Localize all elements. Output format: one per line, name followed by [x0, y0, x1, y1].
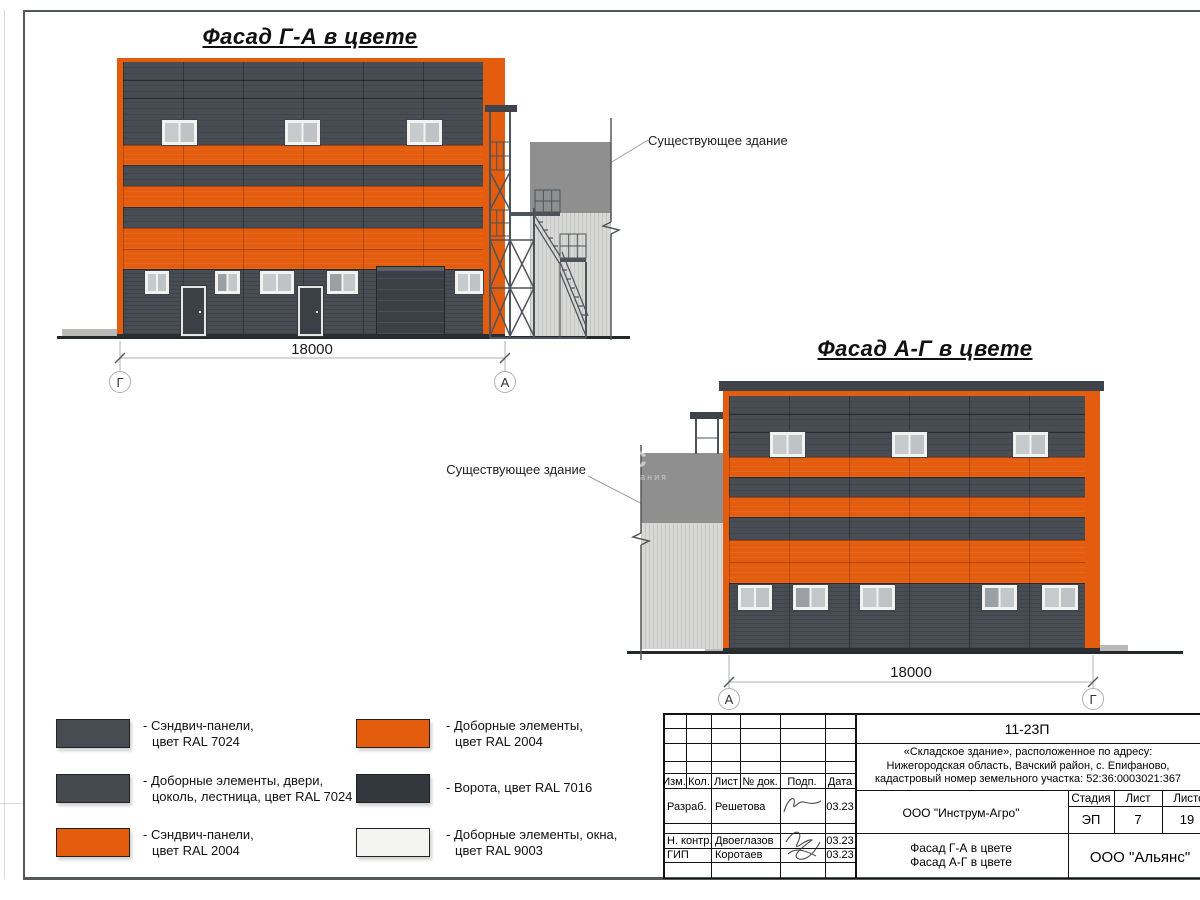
facade2-dimension: 18000 А Г	[620, 655, 1180, 711]
listov-value: 19	[1180, 812, 1194, 827]
project-name: «Складское здание», расположенное по адр…	[875, 746, 1181, 787]
window	[145, 271, 169, 294]
legend-label: - Сэндвич-панели,цвет RAL 2004	[143, 827, 254, 859]
row3-role: ГИП	[667, 849, 689, 861]
legend-swatch-ral9003	[356, 828, 430, 857]
legend-swatch-ral2004-extras	[356, 719, 430, 748]
row1-date: 03.23	[826, 801, 854, 813]
row1-name: Решетова	[715, 801, 765, 813]
col-kol: Кол.	[688, 776, 710, 788]
facade2-band-orange	[729, 457, 1085, 477]
plinth-step	[62, 329, 117, 336]
facade2-band-orange	[729, 497, 1085, 517]
window	[982, 585, 1017, 610]
legend-label: - Сэндвич-панели,цвет RAL 7024	[143, 718, 254, 750]
facade2-band-orange-tall	[729, 540, 1085, 583]
legend-label: - Доборные элементы,цвет RAL 2004	[446, 718, 583, 750]
facade2-note: Существующее здание	[440, 462, 586, 477]
facade1	[117, 58, 507, 337]
facade2-title: Фасад А-Г в цвете	[730, 336, 1120, 362]
window	[407, 120, 442, 145]
window	[1013, 432, 1048, 457]
facade1-axis-right: А	[501, 375, 510, 390]
facade2-band-dark	[729, 517, 1085, 540]
facade1-band-dark	[123, 80, 483, 98]
facade1-axis-left: Г	[116, 375, 123, 390]
gate	[377, 267, 444, 334]
window	[327, 271, 358, 294]
window	[770, 432, 805, 457]
col-data: Дата	[828, 776, 852, 788]
row2-role: Н. контр.	[667, 835, 712, 847]
facade2-axis-left: А	[725, 692, 734, 707]
row3-name: Коротаев	[715, 849, 763, 861]
sheet-margin-tick	[0, 803, 23, 804]
doc-number: 11-23П	[1005, 721, 1050, 737]
window	[892, 432, 927, 457]
window	[1042, 585, 1078, 610]
col-list: Лист	[714, 776, 738, 788]
x-bracing	[490, 172, 534, 336]
facade2-right-trim	[1085, 396, 1100, 648]
window	[860, 585, 895, 610]
window	[285, 120, 320, 145]
facade2-band-plinth	[729, 583, 1085, 648]
facade1-band-orange	[123, 145, 483, 165]
facade2-band-dark	[729, 396, 1085, 414]
facade1-dim-text: 18000	[291, 341, 333, 358]
window	[455, 271, 483, 294]
door	[300, 288, 321, 334]
facade2-axis-right: Г	[1089, 692, 1096, 707]
list-value: 7	[1134, 812, 1141, 827]
org-name: ООО "Альянс"	[1090, 849, 1190, 866]
facade1-title: Фасад Г-А в цвете	[115, 24, 505, 50]
facade1-band-dark	[123, 207, 483, 228]
company-name: ООО "Инструм-Агро"	[903, 806, 1020, 820]
legend-label: - Ворота, цвет RAL 7016	[446, 780, 592, 796]
legend-label: - Доборные элементы, окна,цвет RAL 9003	[446, 827, 617, 859]
listov-label: Листов	[1173, 793, 1200, 805]
door	[183, 288, 204, 334]
facade1-band-orange-tall	[123, 228, 483, 269]
legend-swatch-ral7024-extras	[56, 774, 130, 803]
watermark: нс компания	[612, 443, 668, 482]
row2-date: 03.23	[826, 835, 854, 847]
watermark-big: нс	[612, 443, 668, 473]
stage-value: ЭП	[1082, 812, 1101, 827]
facade1-band-dark	[123, 165, 483, 186]
legend-swatch-ral2004	[56, 828, 130, 857]
legend-label: - Доборные элементы, двери,цоколь, лестн…	[143, 773, 352, 805]
facade2-dim-text: 18000	[890, 664, 932, 681]
window	[215, 271, 240, 294]
drawing-title: Фасад Г-А в цвете Фасад А-Г в цвете	[910, 841, 1012, 869]
row2-name: Двоеглазов	[715, 835, 773, 847]
watermark-small: компания	[612, 473, 668, 482]
window	[260, 271, 294, 294]
row3-date: 03.23	[826, 849, 854, 861]
drawing-sheet: { "colors":{ "orange":"#e45c0e", "panel_…	[0, 0, 1200, 900]
facade1-note: Существующее здание	[648, 133, 788, 148]
sheet-frame-top	[23, 10, 1200, 12]
sheet-margin-line	[4, 10, 5, 879]
facade2-base	[723, 648, 1100, 652]
legend-swatch-ral7016	[356, 774, 430, 803]
facade2-band-dark	[729, 414, 1085, 432]
window	[738, 585, 772, 610]
tower-roof	[485, 105, 517, 112]
window	[793, 585, 828, 610]
row1-role: Разраб.	[667, 801, 707, 813]
legend-swatch-ral7024	[56, 719, 130, 748]
stage-label: Стадия	[1071, 793, 1110, 805]
facade1-band-dark	[123, 62, 483, 80]
fire-escape-tower	[482, 100, 618, 342]
facade2	[719, 380, 1104, 652]
signature-squiggles	[780, 790, 825, 875]
facade2-band-dark	[729, 477, 1085, 497]
facade1-band-orange	[123, 186, 483, 207]
list-label: Лист	[1126, 793, 1151, 805]
col-izm: Изм.	[662, 776, 686, 788]
col-podp: Подп.	[787, 776, 816, 788]
window	[162, 120, 197, 145]
facade1-base	[117, 334, 505, 337]
facade2-parapet	[719, 381, 1104, 391]
facade1-dimension: 18000 Г А	[50, 340, 520, 396]
col-doc: № док.	[742, 776, 777, 788]
sheet-frame-left	[23, 10, 25, 879]
